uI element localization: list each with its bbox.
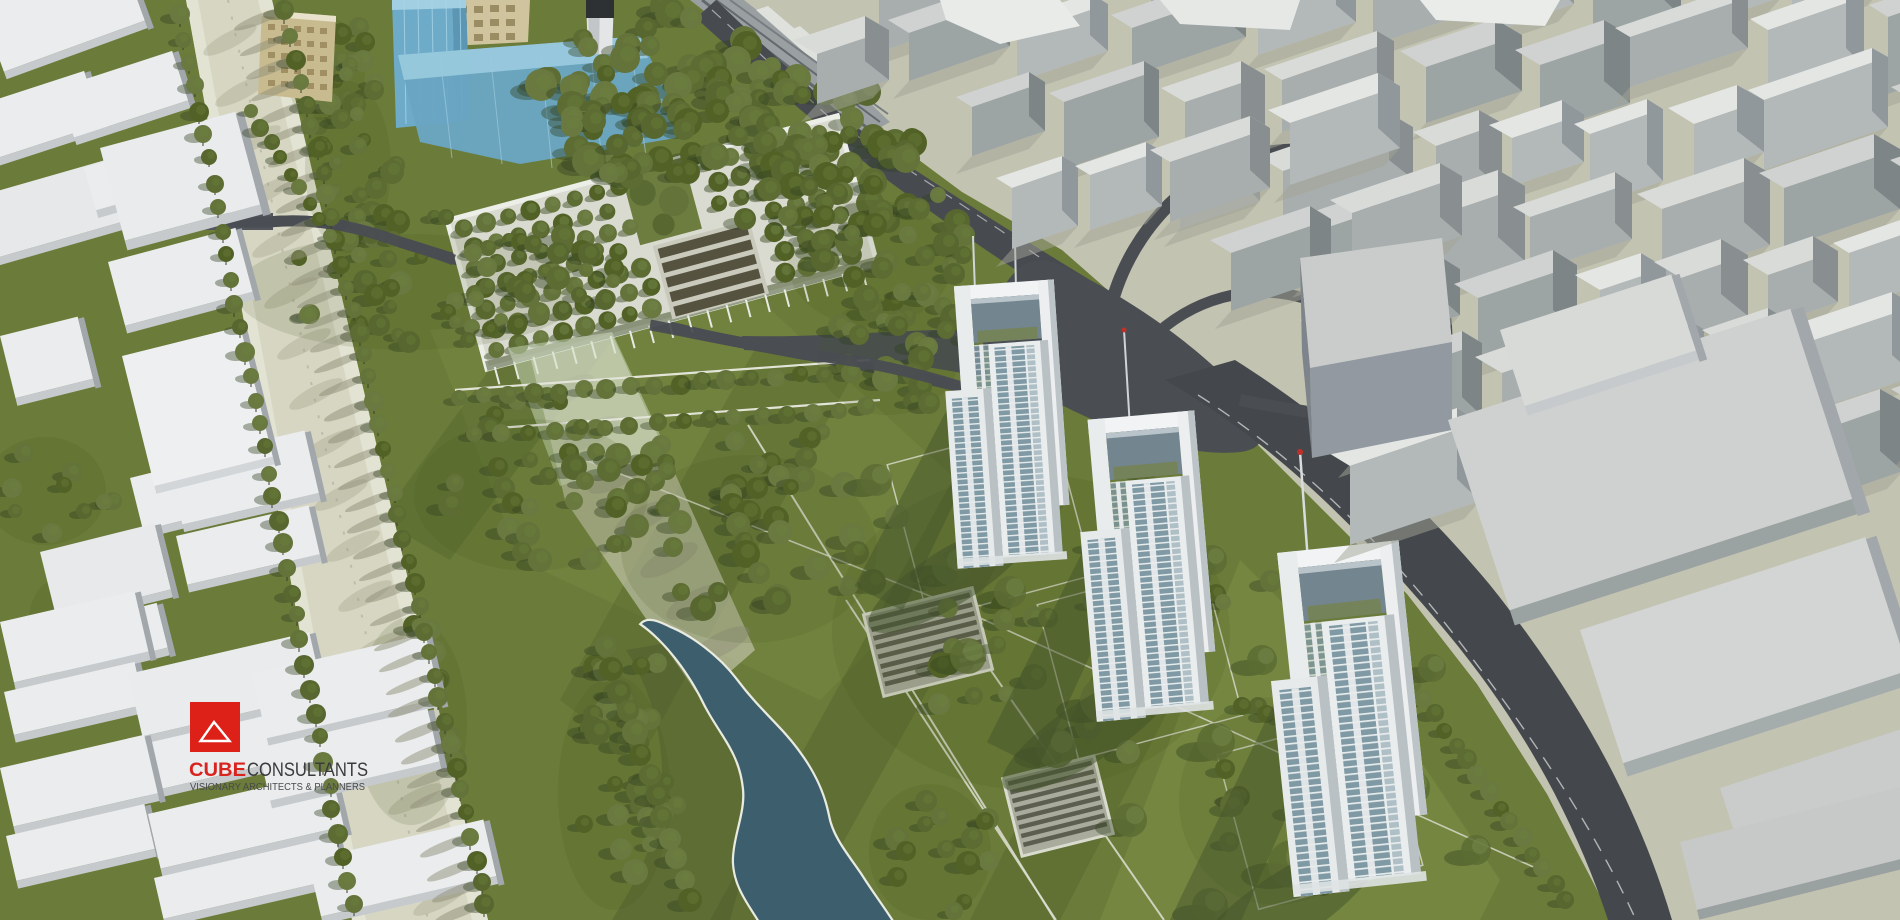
svg-text:CUBE: CUBE (189, 760, 246, 781)
svg-text:CONSULTANTS: CONSULTANTS (247, 760, 368, 781)
svg-text:VISIONARY ARCHITECTS & PLANNER: VISIONARY ARCHITECTS & PLANNERS (190, 782, 365, 793)
